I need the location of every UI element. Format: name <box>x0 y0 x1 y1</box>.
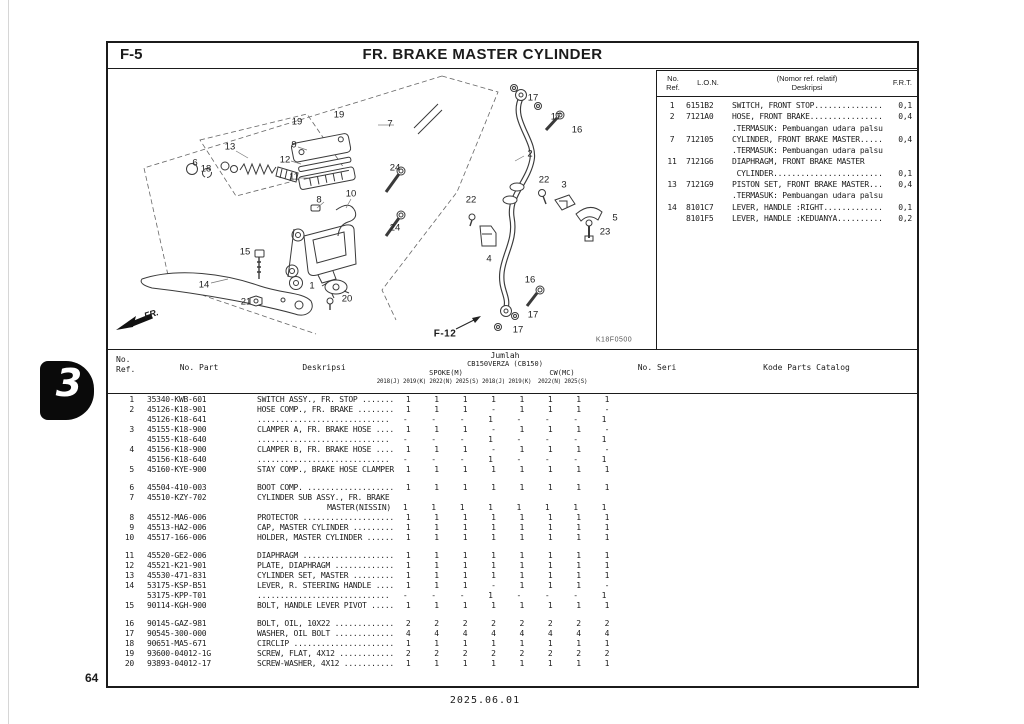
callout-22: 22 <box>539 175 550 186</box>
part-description: LEVER, R. STEERING HANDLE .... <box>257 581 394 591</box>
callout-1: 1 <box>309 281 314 292</box>
qty-cell: - <box>391 591 419 601</box>
qty-cell: 2 <box>536 619 564 629</box>
ref-table-row: 27121A0HOSE, FRONT BRAKE................… <box>662 111 912 122</box>
qty-cell: 1 <box>451 533 479 543</box>
ref-table-row: 137121G9PISTON SET, FRONT BRAKE MASTER..… <box>662 179 912 190</box>
ref-table-rows: 16151B2SWITCH, FRONT STOP...............… <box>657 97 917 224</box>
callout-21: 21 <box>241 297 252 308</box>
qty-cell: 1 <box>479 523 507 533</box>
qty-cell: 1 <box>476 435 504 445</box>
qty-cell: 1 <box>451 405 479 415</box>
parts-table-row: 135340-KWB-601SWITCH ASSY., FR. STOP ...… <box>108 395 917 405</box>
qty-cell: - <box>391 415 419 425</box>
callout-3: 3 <box>561 180 566 191</box>
qty-cell: 1 <box>593 551 621 561</box>
ref-description: .TERMASUK: Pembuangan udara palsu <box>732 190 890 201</box>
qty-cell: 1 <box>508 395 536 405</box>
qty-cell: - <box>505 435 533 445</box>
ref-no <box>662 123 682 134</box>
qty-cell: 1 <box>508 639 536 649</box>
ref-description: HOSE, FRONT BRAKE................ <box>732 111 890 122</box>
qty-cell: 1 <box>476 455 504 465</box>
row-ref-no: 16 <box>108 619 134 629</box>
seri-cell <box>618 455 696 465</box>
catalog-page-scan: F-5 FR. BRAKE MASTER CYLINDER <box>0 0 1024 724</box>
parts-table-row: 1045517-166-006HOLDER, MASTER CYLINDER .… <box>108 533 917 543</box>
ref-description: CYLINDER........................ <box>732 168 890 179</box>
kode-cell <box>699 533 917 543</box>
parts-table-row: 1245521-K21-901PLATE, DIAPHRAGM ........… <box>108 561 917 571</box>
qty-cell: 1 <box>508 513 536 523</box>
parts-header-cw: CW(MC) <box>505 369 619 377</box>
part-number: 53175-KSP-B51 <box>147 581 251 591</box>
callout-7: 7 <box>387 119 392 130</box>
part-number: 90114-KGH-900 <box>147 601 251 611</box>
qty-cell: 1 <box>508 561 536 571</box>
qty-cell: 1 <box>479 483 507 493</box>
qty-cell: 1 <box>536 395 564 405</box>
seri-cell <box>618 503 696 513</box>
part-number: 45156-K18-900 <box>147 445 251 455</box>
callout-17: 17 <box>551 112 562 123</box>
parts-table-header: No.Ref. No. Part Deskripsi Jumlah CB150V… <box>108 349 917 394</box>
part-description: HOSE COMP., FR. BRAKE ........ <box>257 405 394 415</box>
frt-value <box>890 145 912 156</box>
qty-cell: 1 <box>451 581 479 591</box>
page-number: 64 <box>85 671 98 685</box>
lon-code: 8101F5 <box>686 213 728 224</box>
qty-cell: 1 <box>564 639 592 649</box>
row-ref-no <box>108 503 134 513</box>
qty-cell: 1 <box>422 465 450 475</box>
qty-cell: 1 <box>564 425 592 435</box>
qty-cell: - <box>593 581 621 591</box>
parts-table-row: 1790545-300-000WASHER, OIL BOLT ........… <box>108 629 917 639</box>
seri-cell <box>621 639 699 649</box>
row-ref-no: 12 <box>108 561 134 571</box>
qty-cell: - <box>479 425 507 435</box>
qty-cell: 2 <box>508 619 536 629</box>
row-ref-no: 5 <box>108 465 134 475</box>
ref-no <box>662 213 682 224</box>
ref-description: LEVER, HANDLE :RIGHT............. <box>732 202 890 213</box>
qty-cell: 1 <box>451 445 479 455</box>
lon-code <box>686 145 728 156</box>
qty-cell: 1 <box>508 551 536 561</box>
qty-cell: 2 <box>394 619 422 629</box>
qty-cell: 1 <box>593 483 621 493</box>
seri-cell <box>621 425 699 435</box>
kode-cell <box>696 503 917 513</box>
parts-table-row: 1890651-MA5-671CIRCLIP .................… <box>108 639 917 649</box>
qty-cell: 1 <box>476 591 504 601</box>
ref-description: .TERMASUK: Pembuangan udara palsu <box>732 123 890 134</box>
ref-table-row: 117121G6DIAPHRAGM, FRONT BRAKE MASTER <box>662 156 912 167</box>
qty-cell: 1 <box>479 639 507 649</box>
frt-value: 0,4 <box>890 111 912 122</box>
lon-code: 7121A0 <box>686 111 728 122</box>
lon-code <box>686 123 728 134</box>
qty-cell: 1 <box>593 659 621 669</box>
parts-table-rows: 135340-KWB-601SWITCH ASSY., FR. STOP ...… <box>108 392 917 686</box>
kode-cell <box>696 415 917 425</box>
parts-header-years: 2018(J) 2019(K) 2022(N) 2025(S) 2018(J) … <box>360 379 604 385</box>
qty-cell: 1 <box>508 425 536 435</box>
qty-cell: 1 <box>508 571 536 581</box>
qty-cell: - <box>561 415 589 425</box>
kode-cell <box>696 493 917 503</box>
qty-cell: 1 <box>451 425 479 435</box>
qty-cell: 1 <box>451 639 479 649</box>
qty-cell: 1 <box>536 571 564 581</box>
qty-cell: 1 <box>394 533 422 543</box>
callout-8: 8 <box>316 195 321 206</box>
qty-cell: 2 <box>593 649 621 659</box>
lon-code: 8101C7 <box>686 202 728 213</box>
qty-cell: - <box>561 455 589 465</box>
qty-cell <box>561 493 589 503</box>
qty-cell: 1 <box>479 395 507 405</box>
page-title: FR. BRAKE MASTER CYLINDER <box>108 46 857 63</box>
ref-table-row: 8101F5LEVER, HANDLE :KEDUANYA..........0… <box>662 213 912 224</box>
seri-cell <box>618 591 696 601</box>
qty-cell: 1 <box>394 465 422 475</box>
row-ref-no: 2 <box>108 405 134 415</box>
part-description: ............................. <box>257 591 391 601</box>
seri-cell <box>621 465 699 475</box>
ref-description: LEVER, HANDLE :KEDUANYA.......... <box>732 213 890 224</box>
ref-header-no-ref: No.Ref. <box>662 75 684 92</box>
part-description: CYLINDER SUB ASSY., FR. BRAKE <box>257 493 391 503</box>
seri-cell <box>618 415 696 425</box>
qty-cell: - <box>593 425 621 435</box>
qty-cell: 2 <box>479 649 507 659</box>
qty-cell: 1 <box>451 465 479 475</box>
row-ref-no: 13 <box>108 571 134 581</box>
qty-cell: 4 <box>422 629 450 639</box>
part-description: BOLT, HANDLE LEVER PIVOT ..... <box>257 601 394 611</box>
callout-17: 17 <box>513 325 524 336</box>
part-description: PLATE, DIAPHRAGM ............. <box>257 561 394 571</box>
parts-table-row: 53175-KPP-T01...........................… <box>108 591 917 601</box>
part-description: ............................. <box>257 435 391 445</box>
seri-cell <box>621 445 699 455</box>
qty-cell: 1 <box>593 561 621 571</box>
part-number: 45512-MA6-006 <box>147 513 251 523</box>
seri-cell <box>621 629 699 639</box>
qty-cell: 1 <box>536 445 564 455</box>
callout-19: 19 <box>292 117 303 128</box>
qty-cell: 1 <box>422 601 450 611</box>
qty-cell: 2 <box>422 619 450 629</box>
ref-no <box>662 190 682 201</box>
qty-cell: 2 <box>593 619 621 629</box>
kode-cell <box>699 629 917 639</box>
qty-cell: 1 <box>564 395 592 405</box>
qty-cell: 1 <box>564 561 592 571</box>
qty-cell: - <box>391 435 419 445</box>
part-number: 45504-410-003 <box>147 483 251 493</box>
qty-cell: 1 <box>590 435 618 445</box>
qty-cell: 1 <box>479 659 507 669</box>
qty-cell: 1 <box>394 659 422 669</box>
qty-cell: - <box>593 405 621 415</box>
catalog-page: F-5 FR. BRAKE MASTER CYLINDER <box>106 41 919 688</box>
qty-cell: 1 <box>422 571 450 581</box>
part-number: 45530-471-831 <box>147 571 251 581</box>
part-number <box>147 503 251 513</box>
qty-cell <box>505 493 533 503</box>
qty-cell: 1 <box>536 561 564 571</box>
kode-cell <box>696 435 917 445</box>
lon-code <box>686 168 728 179</box>
callout-9: 9 <box>291 140 296 151</box>
qty-cell: 1 <box>394 581 422 591</box>
parts-header-no-part: No. Part <box>147 363 251 372</box>
qty-cell: 4 <box>593 629 621 639</box>
parts-table-row: 45126-K18-641...........................… <box>108 415 917 425</box>
qty-cell: 1 <box>394 639 422 649</box>
qty-cell: 1 <box>451 513 479 523</box>
qty-cell: 4 <box>564 629 592 639</box>
parts-header-model: CB150VERZA (CB150) <box>391 360 619 368</box>
part-number: 45517-166-006 <box>147 533 251 543</box>
qty-cell: 4 <box>479 629 507 639</box>
callout-10: 10 <box>346 189 357 200</box>
part-description: BOOT COMP. ................... <box>257 483 394 493</box>
parts-table-row: 245126-K18-901HOSE COMP., FR. BRAKE ....… <box>108 405 917 415</box>
qty-cell: - <box>448 435 476 445</box>
qty-cell: - <box>419 435 447 445</box>
callout-5: 5 <box>612 213 617 224</box>
diagram-area: F-12 K18F0500 FR. 1919912111361881015141… <box>108 68 656 349</box>
parts-table-row: 1690145-GAZ-981BOLT, OIL, 10X22 ........… <box>108 619 917 629</box>
parts-header-spoke: SPOKE(M) <box>391 369 501 377</box>
part-number: 45126-K18-901 <box>147 405 251 415</box>
qty-cell: 1 <box>536 483 564 493</box>
part-description: CLAMPER A, FR. BRAKE HOSE .... <box>257 425 394 435</box>
qty-cell: - <box>505 455 533 465</box>
qty-cell: 1 <box>508 533 536 543</box>
qty-cell: 1 <box>536 513 564 523</box>
seri-cell <box>621 551 699 561</box>
callout-24: 24 <box>390 163 401 174</box>
ref-no <box>662 168 682 179</box>
qty-cell: 1 <box>564 601 592 611</box>
qty-cell: 2 <box>536 649 564 659</box>
callout-13: 13 <box>225 142 236 153</box>
qty-cell: - <box>533 415 561 425</box>
row-ref-no: 18 <box>108 639 134 649</box>
parts-table-row: MASTER(NISSIN)11111111 <box>108 503 917 513</box>
part-description: ............................. <box>257 455 391 465</box>
qty-cell: 1 <box>564 483 592 493</box>
qty-cell: 1 <box>508 465 536 475</box>
qty-cell: 1 <box>593 601 621 611</box>
seri-cell <box>621 483 699 493</box>
row-ref-no: 10 <box>108 533 134 543</box>
ref-no: 14 <box>662 202 682 213</box>
qty-cell: - <box>479 445 507 455</box>
callout-6: 6 <box>192 158 197 169</box>
ref-table-row: .TERMASUK: Pembuangan udara palsu <box>662 123 912 134</box>
exploded-parts-drawing <box>108 68 656 349</box>
qty-cell: 1 <box>593 533 621 543</box>
seri-cell <box>621 601 699 611</box>
ref-table-row: CYLINDER........................0,1 <box>662 168 912 179</box>
qty-cell: 2 <box>508 649 536 659</box>
qty-cell: 1 <box>590 591 618 601</box>
qty-cell: 1 <box>564 523 592 533</box>
lon-code: 7121G9 <box>686 179 728 190</box>
row-ref-no: 20 <box>108 659 134 669</box>
qty-cell: 2 <box>422 649 450 659</box>
parts-header-jumlah: Jumlah <box>391 351 619 360</box>
part-number: 45521-K21-901 <box>147 561 251 571</box>
qty-cell: 1 <box>394 395 422 405</box>
qty-cell: 1 <box>508 405 536 415</box>
title-band: F-5 FR. BRAKE MASTER CYLINDER <box>108 43 917 69</box>
kode-cell <box>699 581 917 591</box>
qty-cell: 1 <box>394 445 422 455</box>
qty-cell: 1 <box>451 551 479 561</box>
qty-cell: 1 <box>422 405 450 415</box>
qty-cell: - <box>593 445 621 455</box>
kode-cell <box>699 649 917 659</box>
qty-cell: 1 <box>536 533 564 543</box>
callout-4: 4 <box>486 254 491 265</box>
ref-description: DIAPHRAGM, FRONT BRAKE MASTER <box>732 156 890 167</box>
seri-cell <box>621 581 699 591</box>
parts-table-row: 945513-HA2-006CAP, MASTER CYLINDER .....… <box>108 523 917 533</box>
frt-value: 0,1 <box>890 202 912 213</box>
qty-cell: 1 <box>451 483 479 493</box>
kode-cell <box>699 659 917 669</box>
ref-description: SWITCH, FRONT STOP............... <box>732 100 890 111</box>
parts-table-row: 1345530-471-831CYLINDER SET, MASTER ....… <box>108 571 917 581</box>
footer-date: 2025.06.01 <box>415 695 555 706</box>
qty-cell: 4 <box>508 629 536 639</box>
ref-table-row: 148101C7LEVER, HANDLE :RIGHT............… <box>662 202 912 213</box>
qty-cell: 1 <box>422 533 450 543</box>
qty-cell: 1 <box>479 571 507 581</box>
qty-cell: 1 <box>476 415 504 425</box>
callout-19: 19 <box>334 110 345 121</box>
qty-cell: 1 <box>593 523 621 533</box>
qty-cell: 1 <box>422 551 450 561</box>
callout-16: 16 <box>525 275 536 286</box>
scan-edge-line <box>8 0 9 724</box>
reference-table-header: No.Ref. L.O.N. (Nomor ref. relatif)Deskr… <box>657 71 917 97</box>
parts-table-row: 445156-K18-900CLAMPER B, FR. BRAKE HOSE … <box>108 445 917 455</box>
part-number: 45520-GE2-006 <box>147 551 251 561</box>
kode-cell <box>699 619 917 629</box>
part-description: HOLDER, MASTER CYLINDER ...... <box>257 533 394 543</box>
ref-no: 7 <box>662 134 682 145</box>
part-description: SWITCH ASSY., FR. STOP ....... <box>257 395 394 405</box>
part-description: BOLT, OIL, 10X22 ............. <box>257 619 394 629</box>
part-number: 90145-GAZ-981 <box>147 619 251 629</box>
qty-cell: 1 <box>593 465 621 475</box>
ref-description: PISTON SET, FRONT BRAKE MASTER... <box>732 179 890 190</box>
ref-no: 11 <box>662 156 682 167</box>
lon-code: 7121G6 <box>686 156 728 167</box>
part-description: CIRCLIP ...................... <box>257 639 394 649</box>
qty-cell: 1 <box>590 415 618 425</box>
qty-cell: 1 <box>536 523 564 533</box>
qty-cell: 1 <box>451 659 479 669</box>
parts-group: 135340-KWB-601SWITCH ASSY., FR. STOP ...… <box>108 395 917 475</box>
qty-cell: 1 <box>508 601 536 611</box>
qty-cell: - <box>533 591 561 601</box>
qty-cell: 1 <box>479 561 507 571</box>
callout-11: 11 <box>289 172 299 183</box>
part-number: 45155-K18-900 <box>147 425 251 435</box>
frt-value: 0,1 <box>890 168 912 179</box>
qty-cell: 1 <box>590 455 618 465</box>
ref-description: CYLINDER, FRONT BRAKE MASTER..... <box>732 134 890 145</box>
parts-header-no-ref: No.Ref. <box>116 355 135 375</box>
qty-cell: 2 <box>451 649 479 659</box>
qty-cell: 1 <box>451 523 479 533</box>
kode-cell <box>699 513 917 523</box>
lon-code <box>686 190 728 201</box>
seri-cell <box>621 659 699 669</box>
qty-cell: 1 <box>451 601 479 611</box>
qty-cell: - <box>448 591 476 601</box>
qty-cell: 1 <box>394 425 422 435</box>
qty-cell: - <box>448 455 476 465</box>
kode-cell <box>699 395 917 405</box>
parts-group: 645504-410-003BOOT COMP. ...............… <box>108 483 917 543</box>
part-description: STAY COMP., BRAKE HOSE CLAMPER <box>257 465 394 475</box>
qty-cell: 1 <box>593 395 621 405</box>
ref-table-row: .TERMASUK: Pembuangan udara palsu <box>662 190 912 201</box>
qty-cell: 1 <box>394 483 422 493</box>
qty-cell: 1 <box>479 533 507 543</box>
kode-cell <box>699 561 917 571</box>
reference-table-panel: No.Ref. L.O.N. (Nomor ref. relatif)Deskr… <box>656 70 917 349</box>
qty-cell: 1 <box>561 503 589 513</box>
qty-cell: 1 <box>536 465 564 475</box>
part-number: 45510-KZY-702 <box>147 493 251 503</box>
kode-cell <box>699 483 917 493</box>
qty-cell: - <box>505 591 533 601</box>
qty-cell: 1 <box>536 551 564 561</box>
qty-cell: 1 <box>448 503 476 513</box>
qty-cell: - <box>479 581 507 591</box>
row-ref-no: 11 <box>108 551 134 561</box>
part-description: ............................. <box>257 415 391 425</box>
part-description: DIAPHRAGM .................... <box>257 551 394 561</box>
qty-cell: 1 <box>536 425 564 435</box>
ref-no: 13 <box>662 179 682 190</box>
ref-table-row: .TERMASUK: Pembuangan udara palsu <box>662 145 912 156</box>
qty-cell: - <box>479 405 507 415</box>
part-number: 45160-KYE-900 <box>147 465 251 475</box>
diagram-link-f12: F-12 <box>434 329 457 340</box>
parts-group: 1690145-GAZ-981BOLT, OIL, 10X22 ........… <box>108 619 917 669</box>
qty-cell <box>448 493 476 503</box>
callout-23: 23 <box>600 227 611 238</box>
callout-24: 24 <box>390 223 401 234</box>
callout-15: 15 <box>240 247 251 258</box>
qty-cell: 1 <box>479 513 507 523</box>
seri-cell <box>621 533 699 543</box>
part-number: 93600-04012-1G <box>147 649 251 659</box>
callout-16: 16 <box>572 125 583 136</box>
